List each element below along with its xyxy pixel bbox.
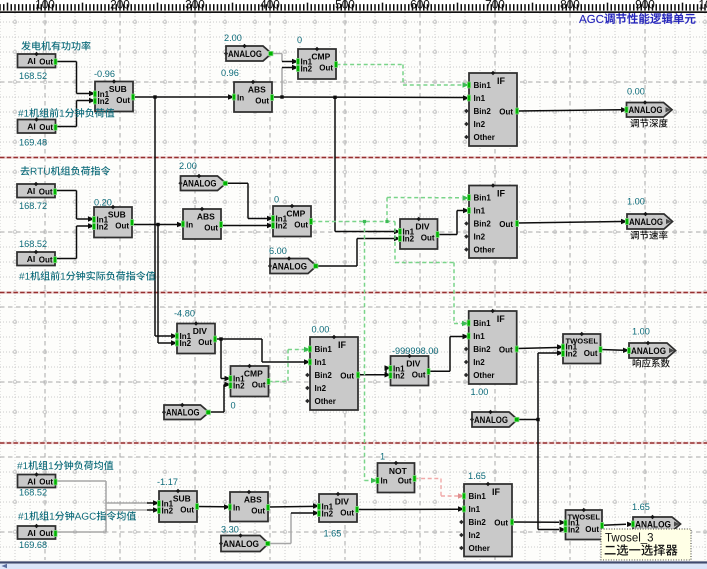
svg-text:Bin1: Bin1	[474, 194, 492, 203]
svg-text:Other: Other	[474, 246, 495, 255]
svg-text:In2: In2	[403, 235, 415, 244]
svg-text:Bin2: Bin2	[315, 371, 333, 380]
svg-text:Out: Out	[398, 477, 412, 486]
svg-text:In1: In1	[315, 358, 327, 367]
svg-text:800: 800	[560, 0, 580, 11]
svg-text:In2: In2	[98, 97, 110, 106]
svg-text:1: 1	[380, 451, 385, 461]
svg-text:Out: Out	[39, 187, 53, 196]
svg-text:Bin2: Bin2	[474, 107, 492, 116]
svg-text:Other: Other	[473, 371, 494, 380]
svg-text:In2: In2	[322, 510, 334, 519]
svg-text:Out: Out	[494, 519, 508, 528]
svg-text:0.00: 0.00	[627, 86, 645, 96]
svg-text:IF: IF	[338, 340, 347, 350]
svg-text:Out: Out	[39, 57, 53, 66]
svg-text:168.52: 168.52	[19, 487, 47, 497]
svg-text:Out: Out	[255, 96, 269, 105]
svg-text:IF: IF	[492, 487, 501, 497]
svg-text:500: 500	[335, 0, 355, 11]
svg-text:0: 0	[274, 194, 279, 204]
svg-text:Out: Out	[180, 505, 194, 514]
svg-text:0.96: 0.96	[221, 68, 239, 78]
svg-text:ABS: ABS	[197, 212, 215, 222]
svg-text:In2: In2	[393, 372, 405, 381]
svg-text:In1: In1	[469, 505, 481, 514]
svg-text:Other: Other	[474, 133, 495, 142]
svg-text:AI: AI	[27, 528, 36, 538]
svg-text:168.52: 168.52	[19, 239, 47, 249]
svg-text:1.65: 1.65	[324, 528, 342, 538]
svg-text:ANALOG: ANALOG	[629, 217, 663, 227]
svg-text:1.65: 1.65	[468, 471, 486, 481]
svg-text:Bin2: Bin2	[469, 518, 487, 527]
svg-text:Out: Out	[39, 478, 53, 487]
svg-text:CMP: CMP	[286, 209, 305, 219]
svg-text:169.48: 169.48	[19, 137, 47, 147]
svg-text:AI: AI	[27, 476, 36, 486]
svg-text:In: In	[237, 94, 244, 103]
svg-text:In2: In2	[474, 233, 486, 242]
svg-text:In2: In2	[233, 382, 245, 391]
svg-text:DIV: DIV	[335, 497, 350, 507]
svg-text:In2: In2	[162, 507, 174, 516]
svg-text:In: In	[381, 477, 388, 486]
svg-text:Out: Out	[198, 338, 212, 347]
svg-text:1.00: 1.00	[632, 326, 650, 336]
svg-text:In2: In2	[566, 350, 578, 359]
svg-text:IF: IF	[497, 76, 506, 86]
svg-text:In2: In2	[180, 339, 192, 348]
svg-text:6.00: 6.00	[269, 246, 287, 256]
svg-text:ANALOG: ANALOG	[629, 105, 663, 115]
svg-text:1.65: 1.65	[632, 502, 650, 512]
svg-text:600: 600	[410, 0, 430, 11]
svg-text:Bin1: Bin1	[315, 345, 333, 354]
svg-text:ANALOG: ANALOG	[272, 261, 307, 271]
svg-text:200: 200	[110, 0, 130, 11]
svg-text:Bin1: Bin1	[469, 492, 487, 501]
svg-text:10: 10	[698, 0, 707, 11]
svg-text:In1: In1	[473, 332, 485, 341]
svg-text:In: In	[233, 504, 240, 513]
svg-text:Out: Out	[499, 108, 513, 117]
svg-text:Bin1: Bin1	[473, 319, 491, 328]
svg-text:Out: Out	[340, 372, 354, 381]
svg-text:AI: AI	[27, 122, 36, 132]
svg-text:100: 100	[35, 0, 55, 11]
svg-text:0: 0	[231, 400, 236, 410]
svg-text:In2: In2	[276, 222, 288, 231]
svg-text:Out: Out	[319, 63, 333, 72]
svg-text:CMP: CMP	[311, 52, 330, 62]
svg-text:ANALOG: ANALOG	[223, 539, 259, 549]
svg-text:0.20: 0.20	[94, 197, 112, 207]
svg-text:DIV: DIV	[193, 326, 208, 336]
svg-text:3.30: 3.30	[221, 524, 239, 534]
svg-text:Twosel_3: Twosel_3	[605, 533, 654, 545]
svg-text:Other: Other	[469, 544, 490, 553]
svg-text:ANALOG: ANALOG	[166, 408, 200, 418]
svg-text:Out: Out	[340, 508, 354, 517]
svg-text:ANALOG: ANALOG	[183, 179, 217, 189]
svg-text:SUB: SUB	[109, 84, 127, 94]
svg-text:1.00: 1.00	[627, 196, 645, 206]
svg-text:-1.17: -1.17	[157, 477, 178, 487]
svg-text:CMP: CMP	[244, 369, 263, 379]
svg-text:Out: Out	[584, 349, 598, 358]
svg-text:ANALOG: ANALOG	[631, 346, 666, 356]
svg-text:ABS: ABS	[248, 85, 266, 95]
svg-text:400: 400	[260, 0, 280, 11]
svg-text:Bin2: Bin2	[474, 220, 492, 229]
svg-text:ANALOG: ANALOG	[635, 519, 671, 529]
svg-text:Bin2: Bin2	[473, 345, 491, 354]
svg-text:IF: IF	[497, 314, 506, 324]
svg-text:In2: In2	[469, 531, 481, 540]
svg-text:0: 0	[297, 35, 302, 45]
svg-text:ANALOG: ANALOG	[228, 49, 262, 59]
svg-text:Out: Out	[116, 96, 130, 105]
svg-text:In2: In2	[97, 223, 109, 232]
svg-text:168.52: 168.52	[19, 71, 47, 81]
svg-text:In: In	[186, 221, 193, 230]
svg-text:Out: Out	[499, 220, 513, 229]
svg-text:Out: Out	[294, 220, 308, 229]
svg-text:Other: Other	[315, 397, 336, 406]
svg-text:-999998.00: -999998.00	[392, 346, 439, 356]
svg-text:900: 900	[635, 0, 655, 11]
svg-text:In2: In2	[474, 120, 486, 129]
svg-text:-0.96: -0.96	[94, 69, 115, 79]
svg-text:AI: AI	[27, 56, 36, 66]
svg-text:1.00: 1.00	[471, 387, 489, 397]
svg-text:AI: AI	[27, 254, 36, 264]
svg-text:In2: In2	[301, 65, 313, 74]
svg-text:ANALOG: ANALOG	[474, 415, 508, 425]
svg-text:In2: In2	[568, 526, 580, 535]
svg-text:ABS: ABS	[244, 495, 262, 505]
svg-text:DIV: DIV	[406, 359, 421, 369]
svg-text:169.68: 169.68	[19, 540, 47, 550]
svg-text:Out: Out	[412, 370, 426, 379]
svg-text:IF: IF	[497, 189, 506, 199]
svg-text:Bin1: Bin1	[474, 81, 492, 90]
svg-text:168.72: 168.72	[19, 201, 47, 211]
svg-text:Out: Out	[252, 380, 266, 389]
svg-text:Out: Out	[585, 525, 599, 534]
svg-text:NOT: NOT	[389, 466, 408, 476]
svg-text:Out: Out	[499, 346, 513, 355]
svg-text:300: 300	[185, 0, 205, 11]
svg-text:Out: Out	[204, 223, 218, 232]
svg-text:Out: Out	[115, 221, 129, 230]
svg-text:Out: Out	[39, 123, 53, 132]
svg-text:DIV: DIV	[415, 222, 430, 232]
svg-text:SUB: SUB	[108, 210, 126, 220]
svg-text:700: 700	[485, 0, 505, 11]
svg-text:Out: Out	[39, 255, 53, 264]
svg-text:In1: In1	[474, 94, 486, 103]
svg-text:Out: Out	[421, 233, 435, 242]
svg-text:SUB: SUB	[173, 494, 191, 504]
svg-text:Out: Out	[39, 529, 53, 538]
svg-text:2.00: 2.00	[179, 161, 197, 171]
svg-text:0.00: 0.00	[312, 324, 330, 334]
svg-text:Out: Out	[251, 506, 265, 515]
svg-text:2.00: 2.00	[224, 33, 242, 43]
svg-text:In2: In2	[315, 384, 327, 393]
svg-text:In1: In1	[474, 207, 486, 216]
svg-text:-4.80: -4.80	[174, 308, 195, 318]
svg-text:AI: AI	[27, 186, 36, 196]
svg-text:In2: In2	[473, 358, 485, 367]
